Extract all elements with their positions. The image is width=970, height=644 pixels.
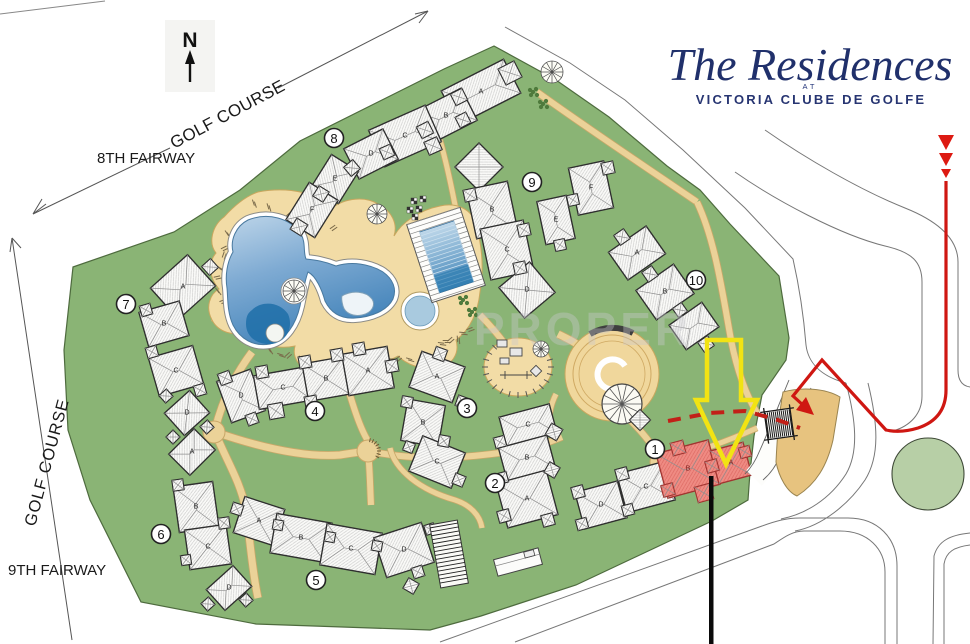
- svg-text:D: D: [226, 585, 231, 592]
- svg-text:B: B: [663, 289, 668, 296]
- svg-text:6: 6: [157, 527, 164, 542]
- svg-text:B: B: [194, 504, 199, 511]
- svg-text:A: A: [366, 368, 371, 375]
- svg-text:C: C: [525, 422, 530, 429]
- svg-text:1: 1: [651, 442, 658, 457]
- svg-text:D: D: [401, 547, 406, 554]
- svg-text:A: A: [435, 374, 440, 381]
- svg-text:10: 10: [689, 273, 703, 288]
- svg-text:A: A: [525, 496, 530, 503]
- svg-text:D: D: [524, 287, 529, 294]
- svg-text:C: C: [205, 544, 210, 551]
- svg-text:3: 3: [463, 401, 470, 416]
- svg-text:C: C: [173, 368, 178, 375]
- svg-text:N: N: [182, 29, 197, 52]
- svg-text:PROPER: PROPER: [474, 303, 692, 355]
- svg-text:D: D: [368, 151, 373, 158]
- svg-text:D: D: [598, 502, 603, 509]
- svg-text:B: B: [525, 455, 530, 462]
- svg-text:8TH FAIRWAY: 8TH FAIRWAY: [97, 150, 195, 167]
- svg-text:9: 9: [528, 175, 535, 190]
- svg-text:C: C: [348, 546, 353, 553]
- svg-text:C: C: [402, 133, 407, 140]
- svg-text:B: B: [686, 466, 691, 473]
- svg-text:2: 2: [491, 476, 498, 491]
- svg-text:8: 8: [330, 131, 337, 146]
- svg-text:C: C: [434, 459, 439, 466]
- svg-text:B: B: [490, 207, 495, 214]
- svg-text:VICTORIA CLUBE DE GOLFE: VICTORIA CLUBE DE GOLFE: [696, 92, 926, 107]
- svg-text:A: A: [190, 449, 195, 456]
- svg-text:E: E: [333, 176, 338, 183]
- svg-text:B: B: [444, 113, 449, 120]
- svg-text:A: A: [479, 89, 484, 96]
- svg-text:A: A: [257, 518, 262, 525]
- svg-text:7: 7: [122, 297, 129, 312]
- svg-text:E: E: [554, 217, 559, 224]
- svg-text:C: C: [504, 247, 509, 254]
- svg-text:AT: AT: [802, 82, 817, 91]
- svg-text:D: D: [238, 393, 243, 400]
- svg-text:F: F: [589, 185, 593, 192]
- svg-text:4: 4: [311, 404, 318, 419]
- svg-text:A: A: [181, 284, 186, 291]
- svg-text:B: B: [421, 420, 426, 427]
- svg-text:9TH FAIRWAY: 9TH FAIRWAY: [8, 562, 106, 579]
- svg-text:D: D: [184, 410, 189, 417]
- svg-text:C: C: [280, 385, 285, 392]
- svg-text:F: F: [310, 207, 314, 214]
- svg-text:B: B: [162, 321, 167, 328]
- svg-text:A: A: [635, 250, 640, 257]
- svg-text:B: B: [324, 376, 329, 383]
- svg-text:B: B: [299, 535, 304, 542]
- svg-text:C: C: [643, 484, 648, 491]
- svg-text:5: 5: [312, 573, 319, 588]
